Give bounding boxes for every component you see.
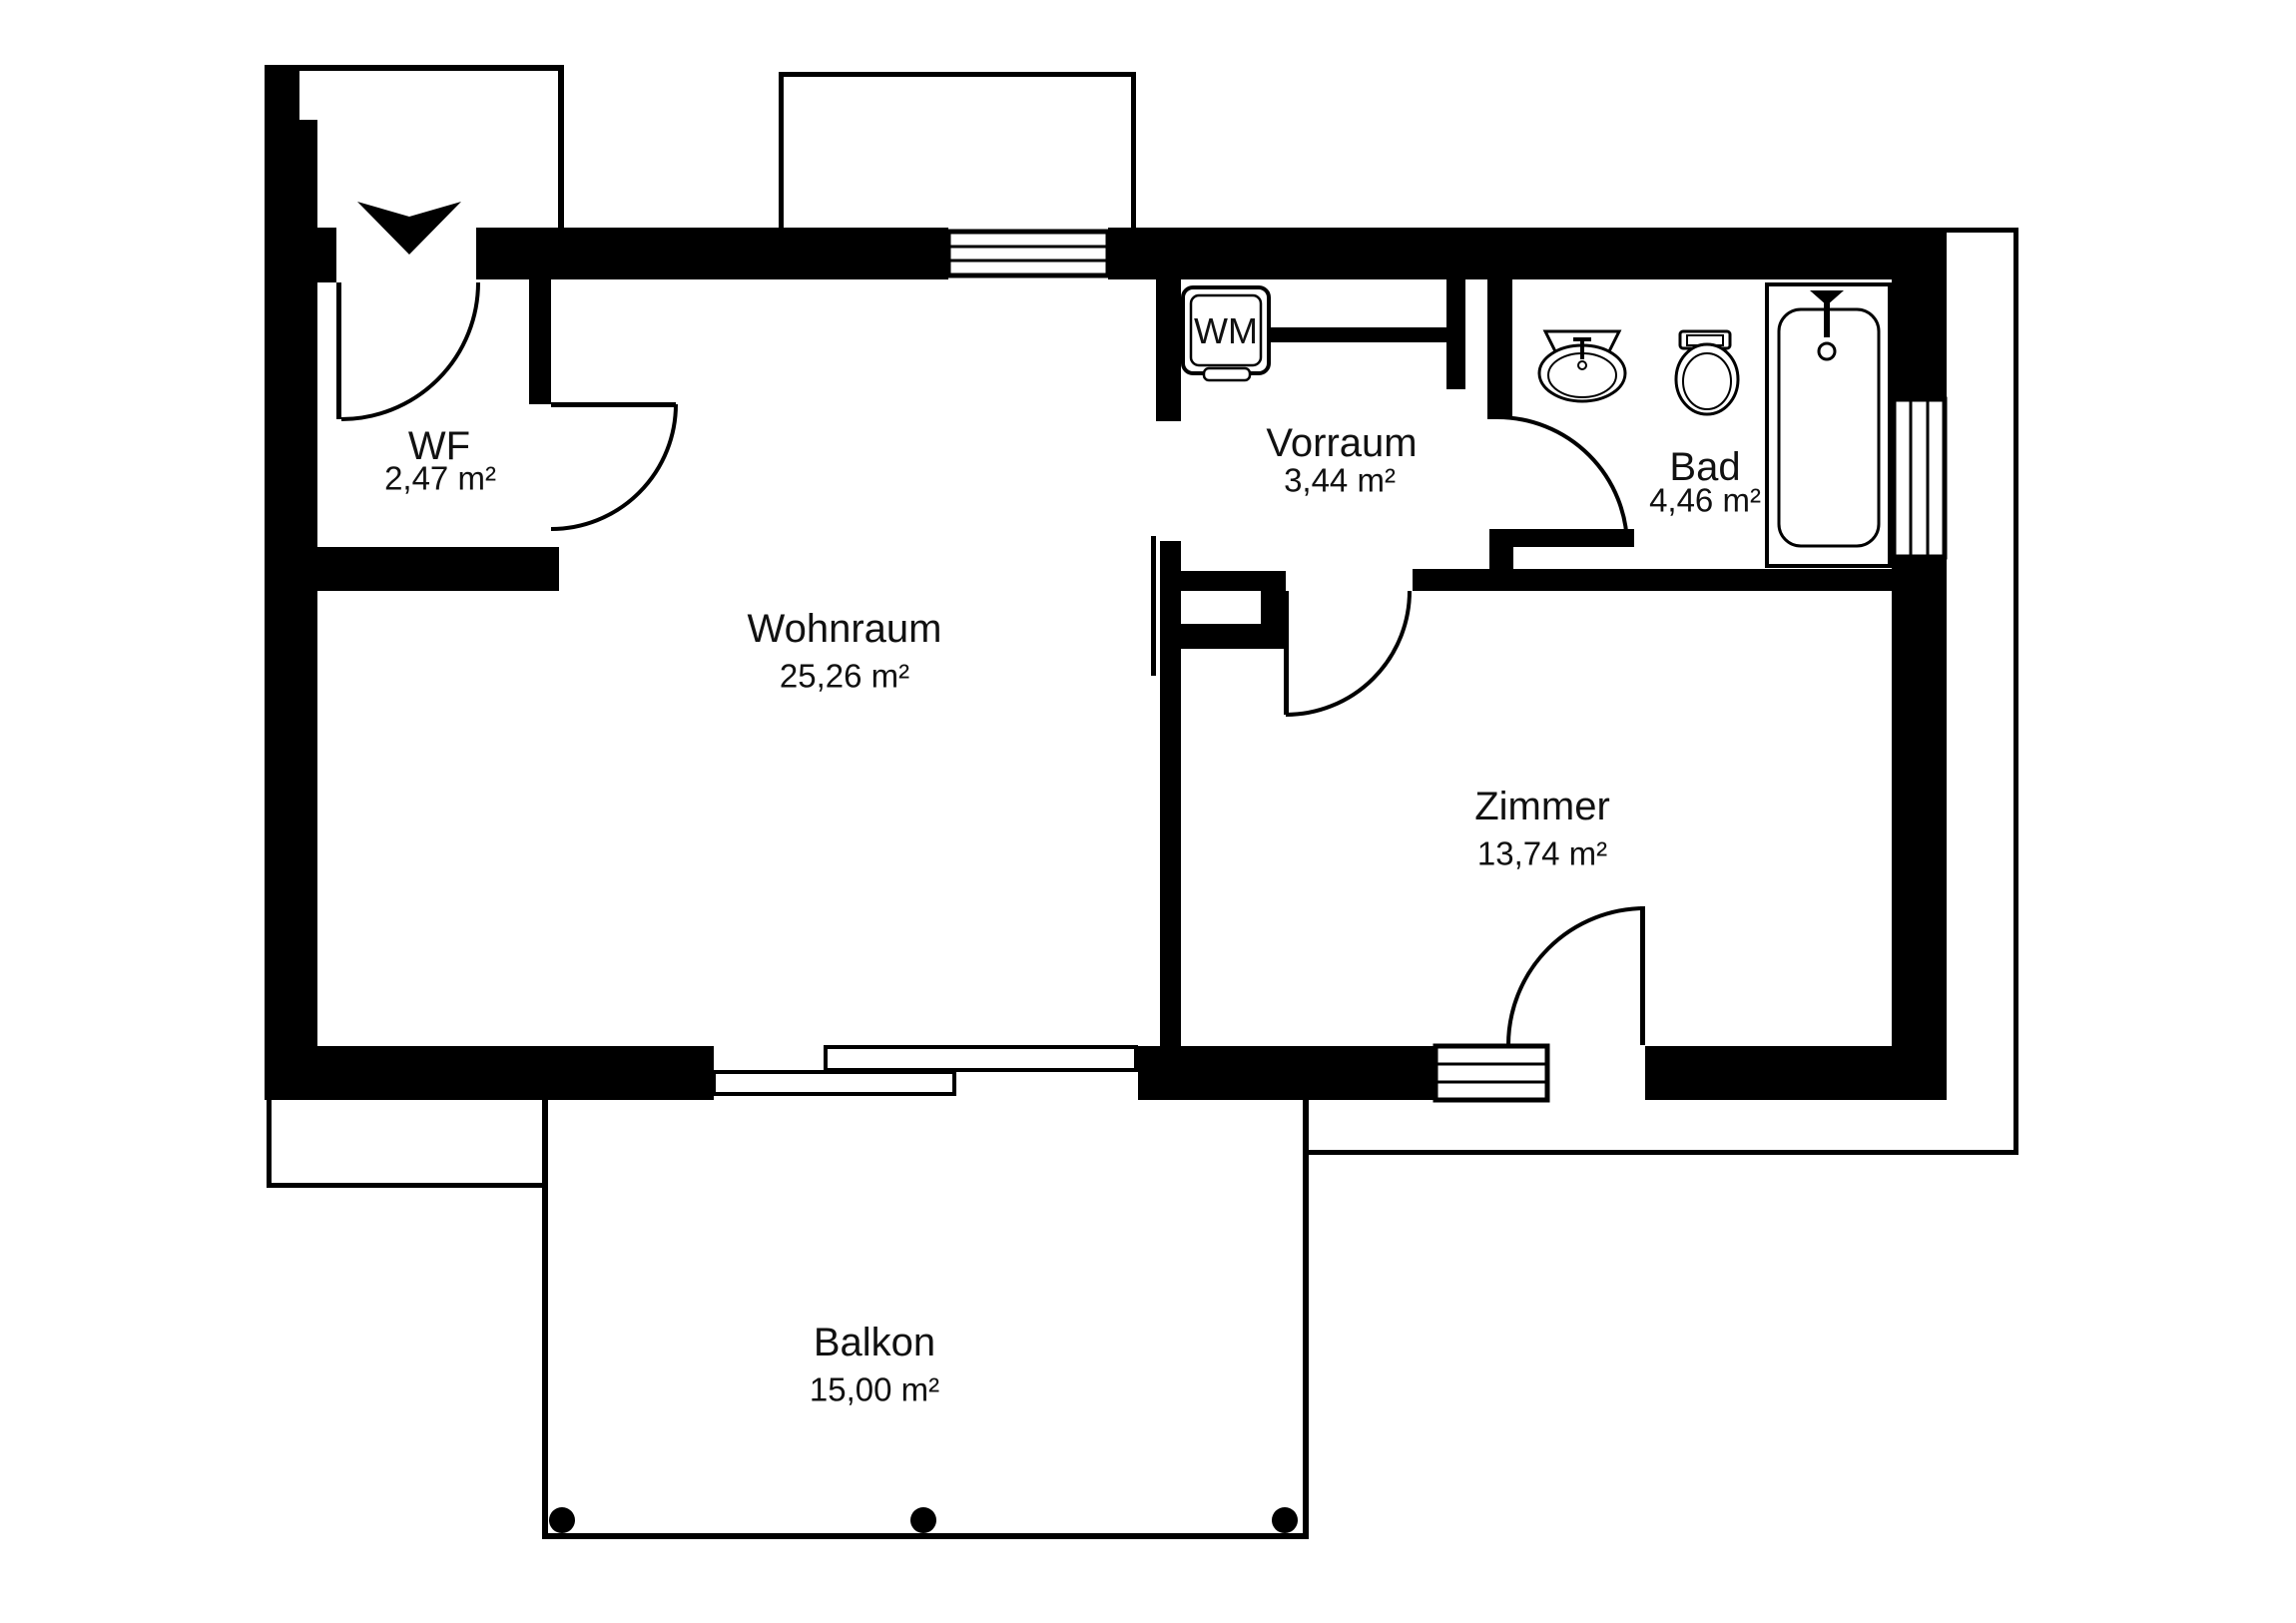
wall-bottom-right [1645,1046,1892,1100]
zimmer-exterior-door [1508,906,1645,1045]
wall-bad-left [1487,277,1512,419]
wall-wf-right [529,279,551,404]
walls [265,65,1947,1100]
wall-vorraum-left [1156,279,1181,421]
wf-door-leaf [551,402,676,407]
room-label-vorraum: Vorraum [1266,423,1417,463]
wall-zimmer-top [1413,569,1892,591]
bad-door-leaf [1489,529,1634,547]
plinth-outline-left [267,1100,272,1188]
wall-top-left [476,228,948,279]
balcony-railing-left [542,1100,548,1539]
zimmer-door-arc [1286,591,1410,715]
footprint-outline-right [2013,228,2018,1155]
balcony-post-icon [549,1507,575,1533]
room-area-zimmer: 13,74 m² [1477,837,1607,870]
entrance-arrow-icon [357,202,461,255]
balcony-railing [542,1100,1309,1539]
stairwell-outline-top [299,65,558,71]
neighbor-outline-left [779,72,784,228]
wall-top-right [1108,228,1947,279]
floor-plan: WF 2,47 m² Wohnraum 25,26 m² Vorraum 3,4… [0,0,2296,1623]
room-area-vorraum: 3,44 m² [1284,464,1396,497]
entrance-door-leaf [336,282,341,419]
balcony-railing-right [1303,1100,1309,1539]
footprint-outline-top [1947,228,2018,233]
wall-wohnraum-zimmer [1160,541,1181,1046]
wall-bad-left-jamb [1446,277,1465,389]
sink-icon [1539,331,1625,401]
balcony-railing-bottom [542,1533,1309,1539]
plinth-outline-bottom [267,1183,545,1188]
wf-door-arc [551,404,676,529]
room-area-wf: 2,47 m² [384,462,496,495]
room-area-wohnraum: 25,26 m² [780,660,909,693]
wall-entrance-stub [317,228,336,282]
wall-wf-bottom [317,547,559,591]
zimmer-exterior-door-arc [1508,908,1645,1045]
bad-door [1489,417,1634,547]
entrance-door [336,282,478,419]
room-label-balkon: Balkon [814,1323,935,1362]
entrance-door-arc [341,282,478,419]
sliding-door-fixed-pane [714,1072,954,1094]
room-label-zimmer: Zimmer [1474,787,1610,826]
window-right-bad [1894,399,1945,557]
wall-bottom-left [265,1046,714,1100]
wall-right-upper [1892,279,1947,399]
stairwell-outline-right [558,65,564,228]
passage-edge-line [1151,536,1156,676]
shaft-bottom [1181,624,1286,649]
wall-left [265,120,317,1100]
balcony-post-icon [1272,1507,1298,1533]
room-label-wohnraum: Wohnraum [748,609,942,649]
wf-door [551,402,676,529]
bad-door-arc [1497,417,1627,547]
zimmer-door [1284,591,1410,715]
zimmer-door-leaf [1284,591,1289,715]
wall-right-lower [1892,557,1947,1100]
room-area-balkon: 15,00 m² [810,1373,939,1406]
window-zimmer-bottom [1435,1046,1547,1100]
neighbor-outline-top [779,72,1136,77]
room-area-bad: 4,46 m² [1649,484,1761,517]
floor-plan-drawing [0,0,2296,1623]
sliding-door-moving-pane [826,1047,1136,1070]
balcony-post-icon [910,1507,936,1533]
wall-bottom-middle [1138,1046,1435,1100]
sliding-door-balcony [714,1047,1136,1094]
bathtub-icon [1767,284,1890,566]
washing-machine-label: WM [1194,313,1258,349]
zimmer-exterior-door-leaf [1640,906,1645,1045]
wall-vorraum-niche-bar [1268,327,1446,342]
window-top [948,232,1108,275]
stairwell-outline [299,65,564,228]
neighbor-room-outline [779,72,1136,228]
toilet-icon [1676,331,1738,414]
neighbor-outline-right [1131,72,1136,228]
footprint-outline-bottom [1309,1150,2018,1155]
